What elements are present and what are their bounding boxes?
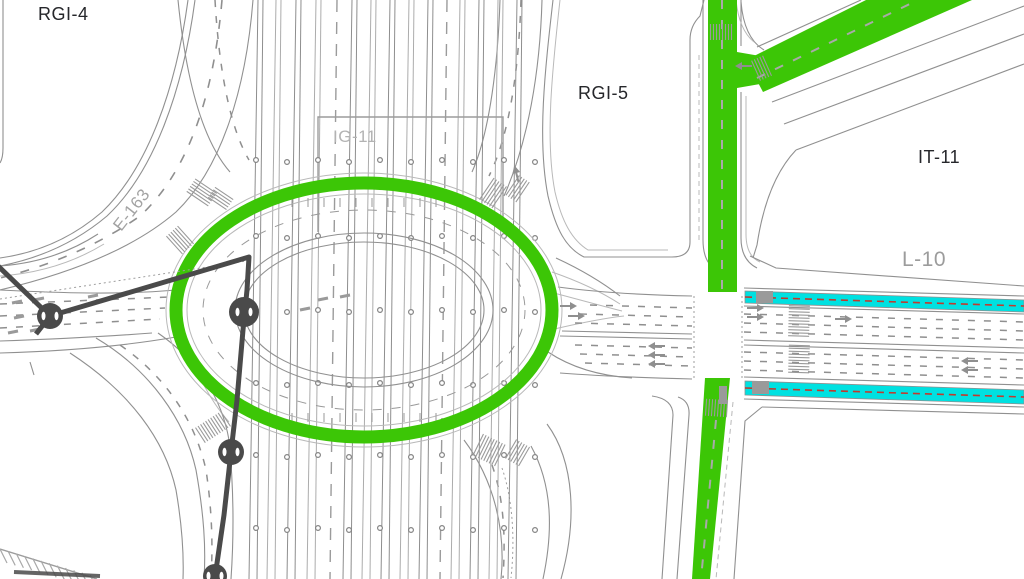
block-rgi4-outline <box>0 0 104 276</box>
zone-label-it-11: IT-11 <box>918 147 960 168</box>
ring-tick-marks <box>292 198 436 422</box>
l10-boundary-line <box>750 256 1024 286</box>
road-e163 <box>0 0 253 290</box>
cycle-lane-gray-block <box>756 291 773 303</box>
green-road-gray-block <box>719 386 727 404</box>
cycle-lane-top <box>745 291 1024 312</box>
ramp-nw <box>178 0 249 172</box>
green-road-north <box>708 0 772 292</box>
block-rgi5-outline <box>543 0 704 257</box>
green-road-diagonal-ne <box>746 0 972 92</box>
plan-drawing <box>0 0 1024 579</box>
utility-node-icons <box>37 297 259 579</box>
ramp-sw <box>70 318 233 579</box>
ref-label-l-10: L-10 <box>902 248 946 272</box>
retaining-wall-hatch <box>0 549 100 579</box>
zone-label-rgi-4: RGI-4 <box>38 4 89 25</box>
boulevard-east-inner <box>558 287 742 379</box>
utility-line <box>0 257 259 579</box>
ref-label-ig-11: IG-11 <box>333 127 377 147</box>
zone-label-rgi-5: RGI-5 <box>578 83 629 104</box>
boulevard-east-outer <box>744 288 1024 407</box>
urban-plan-map-canvas[interactable]: RGI-4 RGI-5 IT-11 IG-11 L-10 E-163 <box>0 0 1024 579</box>
cycle-lane-gray-block <box>752 381 769 394</box>
ring-east-fan <box>548 258 632 378</box>
motorway-corridor-lanes <box>249 0 522 579</box>
